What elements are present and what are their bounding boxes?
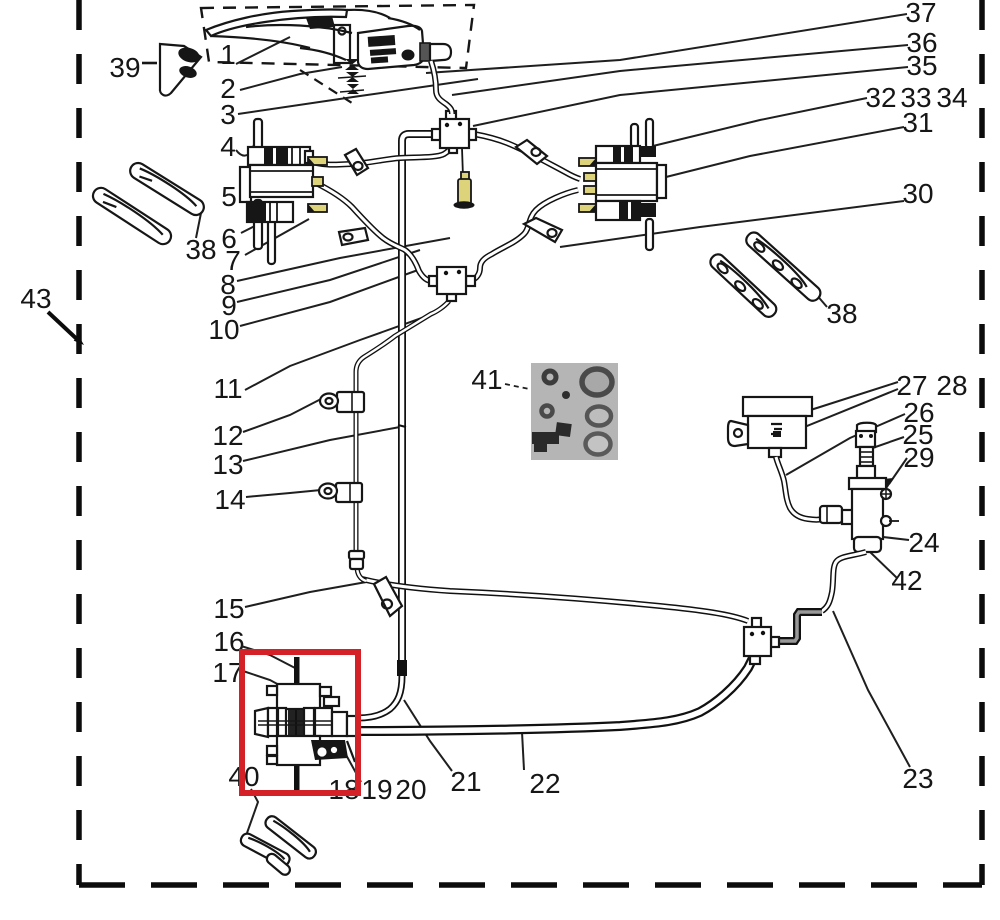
svg-text:21: 21 [450,766,481,797]
svg-text:33: 33 [900,82,931,113]
svg-text:26: 26 [903,397,934,428]
svg-text:43: 43 [20,283,51,314]
svg-text:3: 3 [220,99,236,130]
svg-text:30: 30 [902,178,933,209]
svg-text:24: 24 [908,527,939,558]
svg-text:17: 17 [212,657,243,688]
svg-text:22: 22 [529,768,560,799]
svg-text:19: 19 [361,774,392,805]
svg-text:39: 39 [109,52,140,83]
svg-text:34: 34 [936,82,967,113]
svg-text:10: 10 [208,314,239,345]
svg-text:28: 28 [936,370,967,401]
svg-text:42: 42 [891,565,922,596]
svg-text:11: 11 [213,373,242,404]
svg-text:29: 29 [903,442,934,473]
svg-text:15: 15 [213,593,244,624]
svg-text:14: 14 [214,484,245,515]
svg-text:18: 18 [328,774,359,805]
svg-text:12: 12 [212,420,243,451]
svg-text:5: 5 [221,181,237,212]
svg-text:38: 38 [185,234,216,265]
svg-text:27: 27 [896,370,927,401]
svg-text:41: 41 [471,364,502,395]
svg-text:1: 1 [220,39,236,70]
svg-text:38: 38 [826,298,857,329]
svg-text:20: 20 [395,774,426,805]
svg-text:32: 32 [865,82,896,113]
svg-text:4: 4 [220,131,236,162]
svg-text:37: 37 [905,0,936,28]
svg-text:23: 23 [902,763,933,794]
svg-text:36: 36 [906,27,937,58]
svg-text:13: 13 [212,449,243,480]
